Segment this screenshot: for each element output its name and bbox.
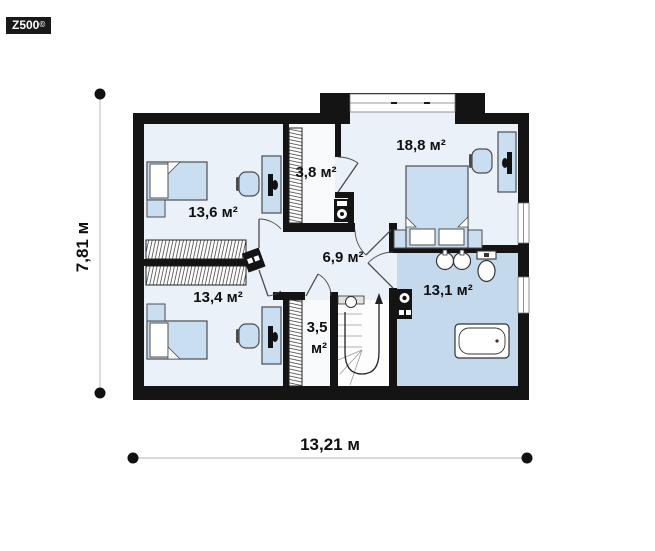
dimension-endpoint-dot [95,388,106,399]
office-chair [469,149,492,173]
pillow [410,229,435,245]
nightstand [147,304,165,321]
wall [335,124,341,157]
room-area-label: 13,1 м² [423,282,472,299]
floor-plan-drawing: 7,81 м 13,21 м [0,0,655,551]
dimension-endpoint-dot [128,453,139,464]
dimension-endpoint-dot [522,453,533,464]
room-hall: 6,9 м² [322,249,363,266]
bathtub [455,324,509,358]
room-area-unit: м² [311,340,327,357]
wardrobe [289,300,302,386]
wardrobe [146,266,246,285]
pillow [439,229,464,245]
monitor-stand [502,158,508,168]
wall [144,259,248,266]
wardrobe [146,240,246,259]
room-area-label: 18,8 м² [396,137,445,154]
drain [495,339,498,342]
room-area-label: 6,9 м² [322,249,363,266]
office-chair [236,324,259,348]
office-chair [236,172,259,196]
chair-backrest [469,154,472,168]
nightstand [147,200,165,217]
chair-backrest [236,329,239,343]
wall [283,223,355,232]
floor-plan-page: { "logo": { "brand": "Z500", "registered… [0,0,655,551]
dimension-vertical: 7,81 м [73,89,106,399]
window [518,277,529,313]
stair-newel-post [346,297,357,308]
horizontal-dimension-label: 13,21 м [300,435,360,454]
pillow [150,164,168,198]
toilet [477,251,496,282]
window [350,94,455,112]
monitor-stand [272,180,278,190]
wall [389,288,397,386]
desk [262,307,281,364]
room-area-label: 13,6 м² [188,204,237,221]
desk [498,132,516,192]
room-area-label: 13,4 м² [193,289,242,306]
nightstand [468,230,482,248]
dimension-horizontal: 13,21 м [128,435,533,464]
bathroom-floor [397,252,518,386]
pillow [150,323,168,357]
room-area-value: 3,5 [307,319,328,336]
water-heater [334,199,350,222]
chair-backrest [236,177,239,191]
wall [330,292,338,386]
room-area-label: 3,8 м² [295,164,336,181]
desk [262,156,281,213]
wall [283,124,289,223]
washing-machine [397,289,412,319]
window [518,203,529,243]
wall [283,292,289,386]
monitor-stand [272,332,278,342]
dimension-endpoint-dot [95,89,106,100]
vertical-dimension-label: 7,81 м [73,222,92,272]
nightstand [394,230,406,248]
